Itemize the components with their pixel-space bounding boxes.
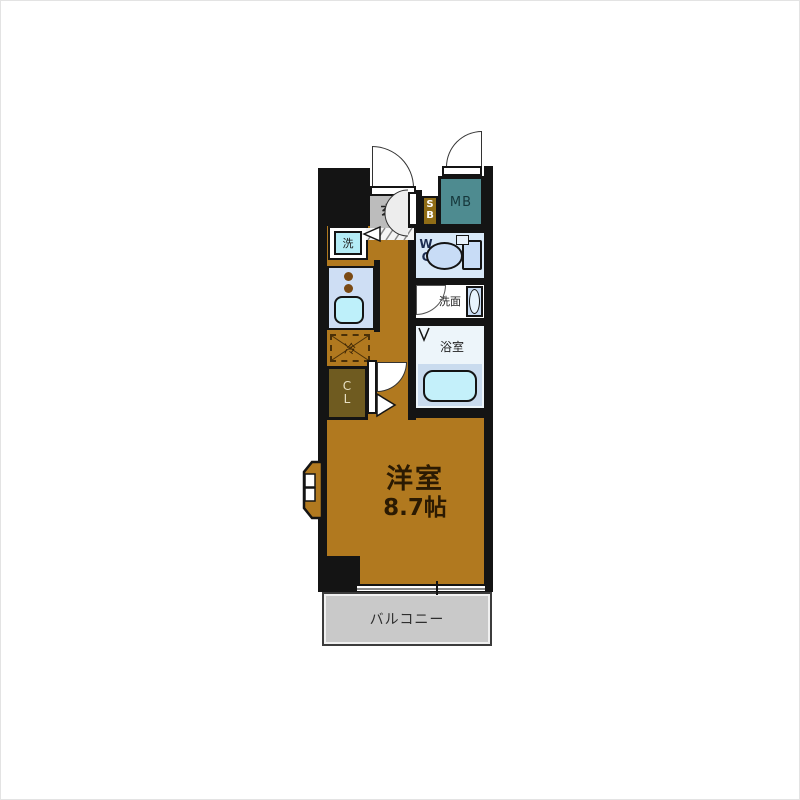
wall-top-left-block — [318, 168, 370, 226]
bay-window-pane-icon — [305, 488, 315, 501]
washroom-label: 洗面 — [432, 293, 468, 309]
meter-box: MB — [438, 176, 484, 228]
burner-icon — [344, 272, 353, 281]
entrance-label: 玄 — [370, 200, 404, 219]
wall-kitchen — [374, 260, 380, 332]
wall-wc-top — [412, 224, 484, 233]
wall-bottom-left-block — [318, 556, 360, 592]
closet-label: CL — [340, 380, 354, 407]
meter-box-door-leaf — [442, 166, 482, 176]
balcony: バルコニー — [322, 592, 492, 646]
room-door-leaf — [367, 360, 377, 414]
entrance-door-arc-icon — [372, 146, 414, 188]
wall-right — [484, 166, 493, 592]
bay-window-pane-icon — [305, 474, 315, 487]
wall-wc-washroom — [412, 278, 484, 285]
main-room-name: 洋室 — [330, 464, 500, 495]
vanity-sink-icon — [469, 289, 480, 314]
refrigerator-label: 冷 — [330, 340, 370, 357]
meter-box-label: MB — [450, 195, 472, 210]
shoe-box-label: SB — [424, 199, 436, 221]
bathtub-icon — [423, 370, 477, 402]
floorplan-page: 玄 SB MB 洗 CL WC 洗面 浴室 洋室 — [0, 0, 800, 800]
washer-label: 洗 — [343, 235, 354, 251]
wall-washroom-bathroom — [412, 318, 484, 326]
main-room-label: 洋室 8.7帖 — [330, 464, 500, 523]
washer-box: 洗 — [334, 231, 362, 255]
main-room-size: 8.7帖 — [330, 495, 500, 523]
wall-bathroom-room — [408, 408, 492, 418]
closet: CL — [326, 366, 368, 420]
wall-entrance-sb — [416, 190, 422, 228]
wall-left — [318, 226, 327, 556]
toilet-cistern-icon — [456, 235, 469, 245]
toilet-bowl-icon — [426, 242, 463, 270]
burner-icon — [344, 284, 353, 293]
balcony-label: バルコニー — [370, 609, 445, 629]
bathroom-label: 浴室 — [430, 338, 474, 355]
meter-box-door-arc-icon — [446, 131, 482, 167]
kitchen-sink-icon — [334, 296, 364, 324]
